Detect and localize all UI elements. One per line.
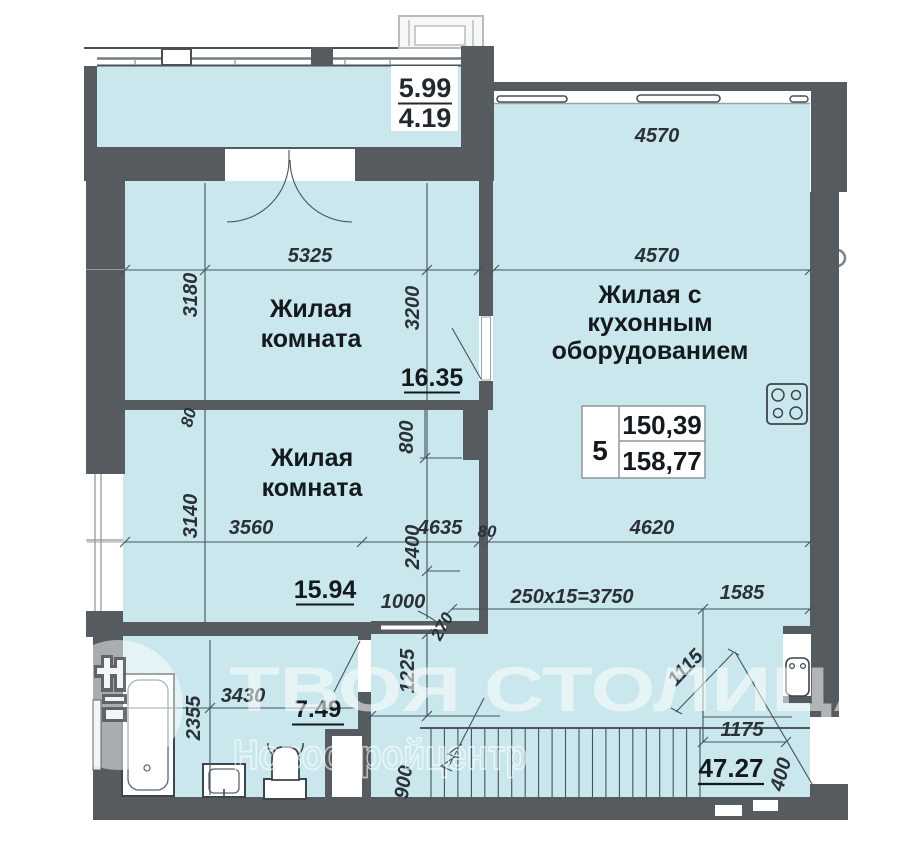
svg-text:1000: 1000 [381, 591, 426, 613]
svg-text:47.27: 47.27 [698, 753, 763, 783]
svg-text:15.94: 15.94 [294, 576, 357, 604]
svg-text:2355: 2355 [183, 695, 205, 741]
svg-text:3200: 3200 [402, 286, 424, 331]
svg-text:150,39: 150,39 [622, 410, 702, 440]
svg-text:Жилая: Жилая [270, 444, 353, 472]
svg-text:кухонным: кухонным [587, 309, 712, 337]
svg-text:16.35: 16.35 [401, 364, 464, 392]
svg-text:158,77: 158,77 [622, 446, 702, 476]
svg-text:Жилая с: Жилая с [597, 281, 701, 309]
svg-text:комната: комната [261, 325, 363, 353]
svg-text:4570: 4570 [634, 125, 680, 147]
svg-text:Новостройцентр: Новостройцентр [233, 731, 527, 778]
svg-text:250х15=3750: 250х15=3750 [510, 586, 634, 608]
svg-text:4.19: 4.19 [399, 103, 452, 133]
svg-text:5.99: 5.99 [399, 73, 452, 103]
svg-text:80: 80 [478, 522, 497, 541]
svg-text:5: 5 [592, 435, 608, 466]
svg-text:4635: 4635 [417, 517, 463, 539]
svg-text:5325: 5325 [288, 245, 333, 267]
svg-text:4570: 4570 [634, 245, 680, 267]
svg-text:3560: 3560 [229, 517, 274, 539]
svg-text:Жилая: Жилая [269, 295, 352, 323]
svg-text:1585: 1585 [720, 582, 765, 604]
svg-text:3180: 3180 [180, 273, 202, 318]
svg-text:800: 800 [396, 420, 418, 453]
svg-text:оборудованием: оборудованием [552, 337, 749, 365]
svg-text:3140: 3140 [180, 494, 202, 539]
svg-text:ТВОЯ СТОЛИЦА: ТВОЯ СТОЛИЦА [229, 655, 892, 725]
svg-text:4620: 4620 [629, 517, 675, 539]
svg-text:комната: комната [262, 474, 364, 502]
